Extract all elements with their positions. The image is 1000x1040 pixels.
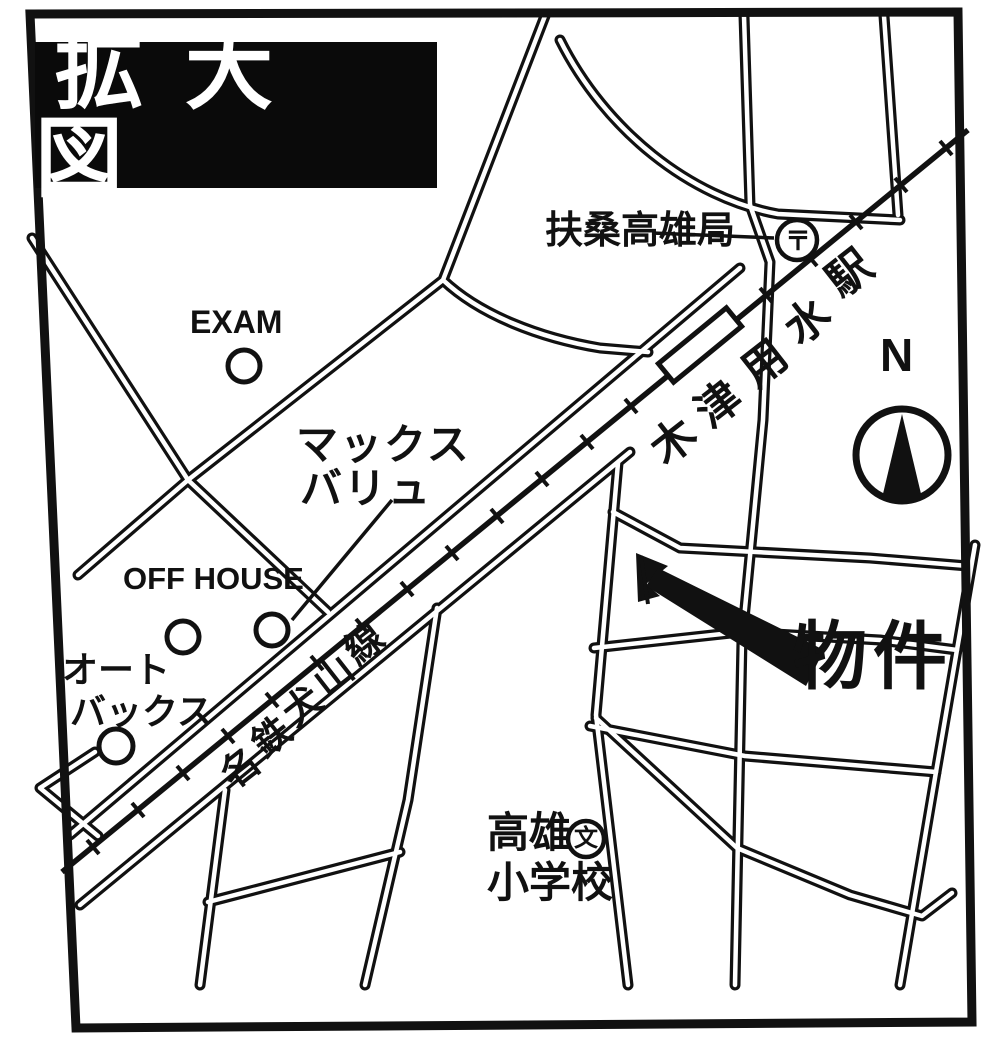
autobacs-label-line1: オート [62, 652, 170, 688]
station-platform-symbol [658, 308, 741, 382]
exam-label: EXAM [190, 306, 282, 338]
max-valu-label-line1: マックス [296, 424, 471, 466]
compass-north-icon [856, 409, 948, 501]
school-label-line2: 小学校 [487, 862, 613, 904]
school-mark-glyph: 文 [574, 827, 598, 851]
property-label: 物件 [793, 620, 953, 694]
exam-location-circle [228, 350, 260, 382]
enlarged-area-map: 拡大図 扶桑高雄局 〒 EXAM マックス バリュ OFF HOUSE オート … [0, 0, 1000, 1040]
off-house-label: OFF HOUSE [123, 563, 304, 594]
compass-north-label: N [880, 332, 913, 378]
off-house-location-circle [167, 621, 199, 653]
off-house-location-circle [256, 614, 288, 646]
school-label-line1: 高雄 [487, 812, 571, 854]
post-office-label: 扶桑高雄局 [545, 212, 735, 250]
max-valu-label-line2: バリュ [300, 468, 432, 510]
map-title-block: 拡大図 [35, 42, 437, 188]
autobacs-location-circle [99, 729, 133, 763]
autobacs-label-line2: バックス [70, 694, 213, 730]
post-mark-glyph: 〒 [785, 228, 811, 254]
map-title: 拡大図 [35, 27, 437, 203]
